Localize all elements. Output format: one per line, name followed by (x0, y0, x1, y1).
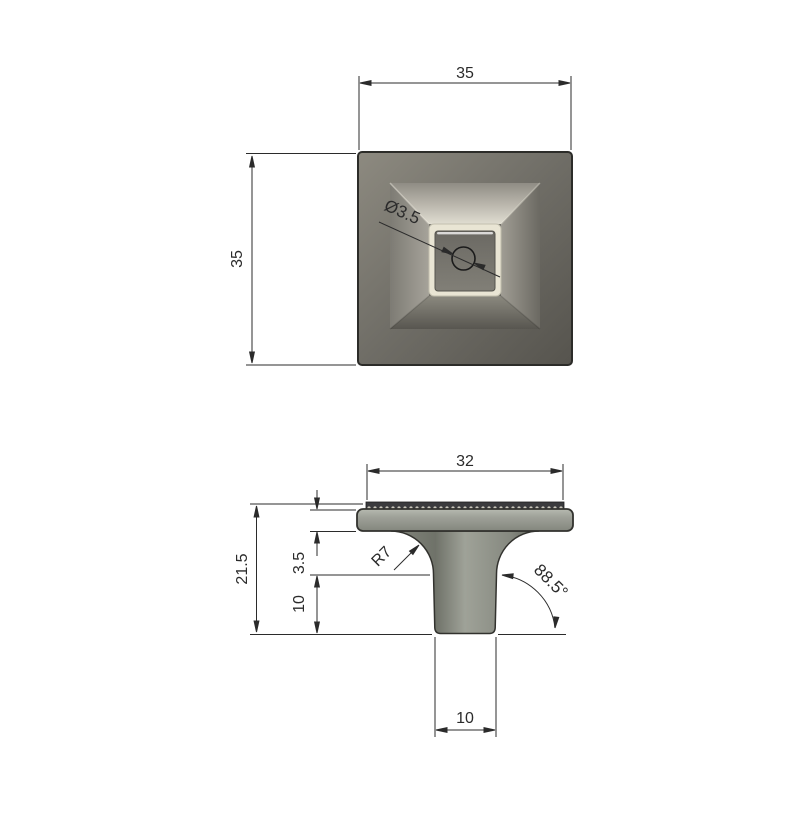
arrow-head (315, 532, 320, 543)
top-width-label: 35 (456, 65, 474, 82)
arrow-head (315, 576, 320, 587)
fillet-radius-dimension (394, 543, 421, 570)
inner-square-highlight (437, 232, 493, 234)
arrow-head (250, 352, 255, 363)
cap-width-label: 32 (456, 453, 474, 470)
arrow-head (410, 543, 421, 554)
top-height-dimension (246, 154, 356, 366)
side-angle-label: 88.5° (530, 560, 572, 602)
fillet-radius-label: R7 (369, 544, 396, 571)
cap-thickness-label: 3.5 (291, 552, 308, 574)
knob-stem (391, 531, 539, 634)
arrow-head (250, 156, 255, 167)
arrow-head (559, 81, 570, 86)
arrow-head (551, 469, 562, 474)
front-view: 32 21.5 3.5 10 (234, 453, 573, 737)
top-width-dimension (359, 76, 571, 150)
knob-cap (357, 509, 573, 531)
arrow-head (484, 728, 495, 733)
arrow-head (315, 498, 320, 509)
drawing-canvas: Ø3.5 35 35 (0, 0, 812, 815)
stem-width-label: 10 (456, 710, 474, 727)
top-height-label: 35 (229, 250, 246, 268)
arrow-head (368, 469, 379, 474)
arrow-head (254, 506, 259, 517)
top-view: Ø3.5 35 35 (229, 65, 572, 365)
arrow-head (436, 728, 447, 733)
stem-height-dimension (310, 575, 430, 633)
cad-drawing: Ø3.5 35 35 (0, 0, 812, 815)
stem-height-label: 10 (291, 595, 308, 613)
arrow-head (315, 622, 320, 633)
arrow-head (360, 81, 371, 86)
arrow-head (502, 573, 513, 579)
cap-thickness-dimension (310, 490, 356, 556)
arrow-head (254, 621, 259, 632)
total-height-label: 21.5 (234, 553, 251, 584)
